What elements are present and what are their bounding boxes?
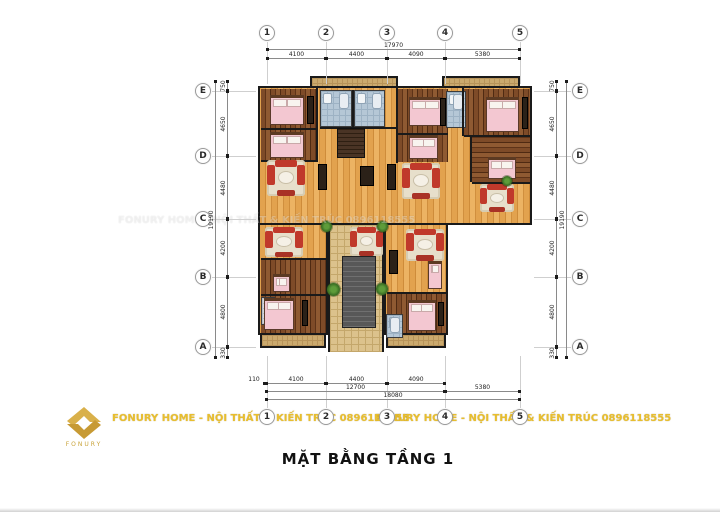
dimension-label: 4200 xyxy=(221,240,227,255)
dimension-label: 4650 xyxy=(221,116,227,131)
dimension-label: 5380 xyxy=(474,385,491,391)
grid-column-marker-top: 1 xyxy=(259,25,275,41)
kitchen-counter xyxy=(318,164,327,190)
plant xyxy=(376,283,388,295)
grid-row-marker-right: D xyxy=(572,148,588,164)
dimension-line: 4100 xyxy=(266,383,326,384)
bed xyxy=(270,95,304,125)
bathroom xyxy=(386,314,403,338)
dimension-label: 4800 xyxy=(550,304,556,319)
wall xyxy=(261,294,328,296)
wall xyxy=(464,135,530,137)
dimension-line: 5380 xyxy=(445,391,520,392)
dimension-line: 4480 xyxy=(227,156,228,219)
dimension-label: 4200 xyxy=(550,240,556,255)
dimension-line: 12700 xyxy=(266,391,445,392)
grid-row-marker-right: E xyxy=(572,83,588,99)
bed xyxy=(488,157,516,179)
extension-line xyxy=(212,219,256,220)
dimension-label: 19190 xyxy=(209,210,215,229)
grid-column-marker-bottom: 3 xyxy=(379,409,395,425)
dimension-line: 4090 xyxy=(387,58,445,59)
dimension-line: 18080 xyxy=(266,399,520,400)
dimension-line: 4650 xyxy=(556,91,557,156)
dimension-label: 4090 xyxy=(407,52,424,58)
grid-column-marker-bottom: 4 xyxy=(437,409,453,425)
wall xyxy=(462,88,464,136)
wardrobe xyxy=(522,97,528,129)
sofa-set xyxy=(267,160,305,196)
dimension-label: 330 xyxy=(550,347,556,358)
bed xyxy=(428,261,442,289)
dimension-label: 330 xyxy=(221,347,227,358)
grid-row-marker-right: B xyxy=(572,269,588,285)
dimension-label: 4480 xyxy=(221,180,227,195)
extension-line xyxy=(212,347,256,348)
dimension-label: 4650 xyxy=(550,116,556,131)
sofa-set xyxy=(406,229,444,261)
grid-column-marker-top: 4 xyxy=(437,25,453,41)
dimension-label: 4100 xyxy=(287,377,304,383)
bed xyxy=(270,132,304,158)
bed xyxy=(408,300,436,331)
dimension-label: 4400 xyxy=(348,52,365,58)
grid-column-marker-top: 3 xyxy=(379,25,395,41)
bathroom xyxy=(320,90,352,127)
grid-row-marker-left: B xyxy=(195,269,211,285)
staircase-main xyxy=(342,256,376,328)
dimension-line: 4480 xyxy=(556,156,557,219)
floor-plan-sheet: FONURY HOME - NỘI THẤT & KIẾN TRÚC 08961… xyxy=(0,0,720,512)
extension-line xyxy=(212,91,256,92)
dimension-line: 4800 xyxy=(227,277,228,347)
wardrobe xyxy=(302,300,308,326)
dimension-line: 4200 xyxy=(227,219,228,277)
wall xyxy=(387,292,446,294)
extension-line xyxy=(212,277,256,278)
plant xyxy=(502,176,512,186)
dimension-label: 4090 xyxy=(407,377,424,383)
dimension-label: 110 xyxy=(247,377,260,383)
dimension-line: 5380 xyxy=(445,58,520,59)
grid-column-marker-bottom: 1 xyxy=(259,409,275,425)
dimension-line: 4800 xyxy=(556,277,557,347)
dining-table xyxy=(360,166,374,186)
grid-row-marker-left: E xyxy=(195,83,211,99)
watermark-faint: FONURY HOME - NỘI THẤT & KIẾN TRÚC 08961… xyxy=(118,215,415,226)
kitchen-counter xyxy=(389,250,398,274)
grid-row-marker-right: C xyxy=(572,211,588,227)
wall xyxy=(261,128,318,130)
grid-column-marker-top: 5 xyxy=(512,25,528,41)
dimension-line: 330 xyxy=(227,347,228,358)
wardrobe xyxy=(307,96,314,124)
dimension-label: 12700 xyxy=(345,385,366,391)
bed xyxy=(264,298,294,330)
dimension-label: 4400 xyxy=(348,377,365,383)
wardrobe xyxy=(440,98,446,126)
dimension-label: 18080 xyxy=(382,393,403,399)
wall xyxy=(396,88,398,163)
dimension-label: 4100 xyxy=(288,52,305,58)
grid-row-marker-left: A xyxy=(195,339,211,355)
sofa-set xyxy=(402,163,440,199)
wall xyxy=(316,88,318,162)
wardrobe xyxy=(438,302,444,326)
dimension-label: 19190 xyxy=(560,210,566,229)
dimension-line: 4400 xyxy=(326,58,387,59)
dimension-line: 19190 xyxy=(566,81,567,358)
dimension-line: 4090 xyxy=(387,383,445,384)
dimension-line: 17970 xyxy=(267,49,520,50)
wall xyxy=(261,258,328,260)
grid-row-marker-right: A xyxy=(572,339,588,355)
bathroom xyxy=(354,90,385,127)
dimension-line: 4100 xyxy=(267,58,326,59)
wall xyxy=(352,90,354,127)
bed xyxy=(486,97,519,132)
sofa-set xyxy=(480,184,514,212)
grid-column-marker-bottom: 5 xyxy=(512,409,528,425)
dimension-label: 4480 xyxy=(550,180,556,195)
extension-line xyxy=(212,156,256,157)
grid-row-marker-left: D xyxy=(195,148,211,164)
bed xyxy=(409,135,438,159)
dimension-label: 4800 xyxy=(221,304,227,319)
staircase-upper xyxy=(337,128,365,158)
page-edge-shadow xyxy=(0,508,720,512)
brand-logo-text: FONURY xyxy=(58,441,110,448)
dimension-label: 17970 xyxy=(383,43,404,49)
wall xyxy=(470,137,472,182)
sofa-set xyxy=(265,227,303,257)
dimension-line: 4650 xyxy=(227,91,228,156)
dimension-line: 4200 xyxy=(556,219,557,277)
grid-column-marker-top: 2 xyxy=(318,25,334,41)
sofa-set xyxy=(350,227,383,256)
bed xyxy=(409,97,442,126)
kitchen-counter xyxy=(387,164,396,190)
dimension-line: 19190 xyxy=(215,81,216,358)
brand-logo-icon xyxy=(62,406,106,440)
balcony-bottom-left xyxy=(260,333,326,348)
dimension-label: 5380 xyxy=(474,52,491,58)
bed xyxy=(273,274,290,292)
dimension-line: 330 xyxy=(556,347,557,358)
plant xyxy=(327,283,340,296)
grid-column-marker-bottom: 2 xyxy=(318,409,334,425)
sheet-title: MẶT BẰNG TẦNG 1 xyxy=(243,450,493,468)
